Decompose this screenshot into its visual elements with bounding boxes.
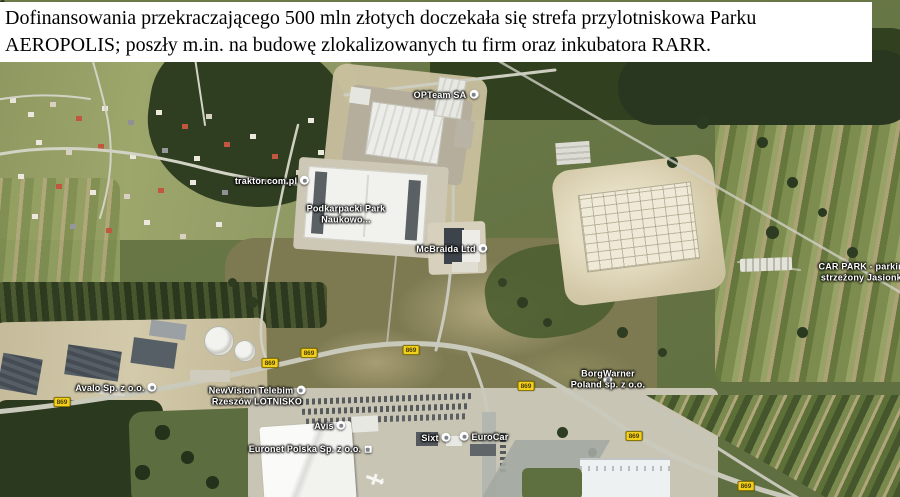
poi-label-opteam[interactable]: OPTeam SA [414,90,479,101]
poi-label-avalo[interactable]: Avalo Sp. z o.o. [75,383,156,394]
poi-marker-icon[interactable] [479,244,488,253]
poi-label-layer: OPTeam SAtraktor.com.plPodkarpacki ParkN… [0,0,900,497]
poi-label-eurocar[interactable]: EuroCar [460,432,509,443]
caption-line2: AEROPOLIS; poszły m.in. na budowę zlokal… [5,32,872,59]
poi-marker-icon[interactable] [300,176,309,185]
poi-label-borgwarner[interactable]: BorgWarnerPoland sp. z o.o. [571,369,645,390]
map-canvas[interactable]: 869869869869869869869 OPTeam SAtraktor.c… [0,0,900,497]
poi-marker-icon[interactable] [442,433,451,442]
poi-label-traktor[interactable]: traktor.com.pl [235,176,309,187]
poi-label-euronet[interactable]: Euronet Polska Sp. z o.o. [249,444,372,455]
poi-label-sixt[interactable]: Sixt [421,433,450,444]
screenshot-root: 869869869869869869869 OPTeam SAtraktor.c… [0,0,900,497]
poi-marker-icon[interactable] [296,386,305,395]
poi-marker-icon[interactable] [148,383,157,392]
caption-line1: Dofinansowania przekraczającego 500 mln … [5,5,872,32]
poi-label-new-vision[interactable]: NewVision TelebimRzeszów LOTNISKO [209,386,306,407]
poi-label-mcbraida[interactable]: McBraida Ltd [416,244,487,255]
poi-marker-icon[interactable] [364,446,371,453]
poi-label-car-park[interactable]: CAR PARK - parkingstrzeżony Jasionka [819,262,900,283]
poi-marker-icon[interactable] [460,432,469,441]
poi-marker-icon[interactable] [469,90,478,99]
poi-label-avis[interactable]: Avis [314,421,345,432]
caption-box: Dofinansowania przekraczającego 500 mln … [0,2,872,62]
poi-marker-icon[interactable] [337,421,346,430]
poi-label-podkarpacki-park[interactable]: Podkarpacki ParkNaukowo... [307,204,386,225]
